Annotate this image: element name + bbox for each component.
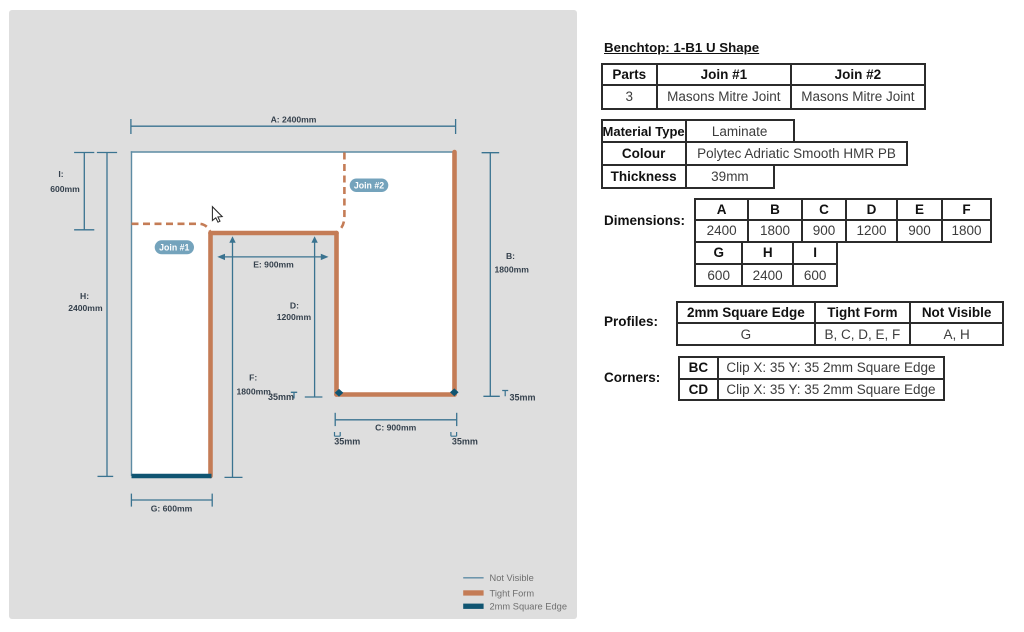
svg-text:35mm: 35mm bbox=[268, 392, 294, 402]
svg-text:1200mm: 1200mm bbox=[277, 312, 312, 322]
svg-text:F:: F: bbox=[249, 373, 257, 383]
svg-text:2400mm: 2400mm bbox=[68, 303, 103, 313]
svg-text:Join #2: Join #2 bbox=[354, 181, 384, 191]
svg-text:35mm: 35mm bbox=[334, 437, 360, 447]
svg-text:1800mm: 1800mm bbox=[236, 387, 271, 397]
svg-text:35mm: 35mm bbox=[452, 437, 478, 447]
svg-text:A: 2400mm: A: 2400mm bbox=[271, 115, 317, 125]
svg-text:G: 600mm: G: 600mm bbox=[151, 504, 193, 514]
svg-text:D:: D: bbox=[290, 301, 299, 311]
svg-text:I:: I: bbox=[58, 169, 63, 179]
svg-text:1800mm: 1800mm bbox=[494, 265, 529, 275]
svg-text:Not Visible: Not Visible bbox=[490, 573, 534, 583]
svg-text:C: 900mm: C: 900mm bbox=[375, 423, 416, 433]
svg-text:Join #1: Join #1 bbox=[159, 243, 189, 253]
svg-text:600mm: 600mm bbox=[50, 184, 80, 194]
svg-text:35mm: 35mm bbox=[509, 393, 535, 403]
svg-text:H:: H: bbox=[80, 291, 89, 301]
svg-text:Tight Form: Tight Form bbox=[490, 588, 535, 598]
svg-text:B:: B: bbox=[506, 251, 515, 261]
svg-text:2mm Square Edge: 2mm Square Edge bbox=[490, 602, 568, 612]
svg-text:E: 900mm: E: 900mm bbox=[253, 259, 294, 269]
